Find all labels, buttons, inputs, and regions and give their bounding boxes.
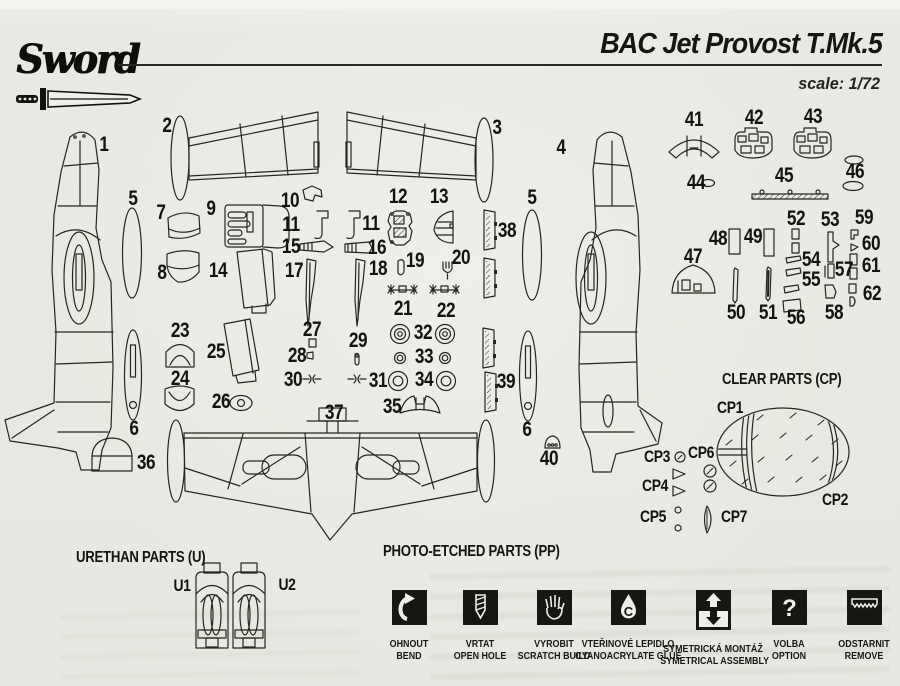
part-11-hook — [315, 211, 328, 238]
remove-saw-icon — [847, 590, 882, 625]
part-7-intake — [168, 213, 200, 238]
part-24-cowl — [165, 386, 194, 411]
part-33-wheels-small — [395, 353, 451, 364]
clear-part-cp1-canopy — [717, 407, 849, 497]
part-20-yoke — [443, 262, 452, 279]
part-36-nose-cap — [92, 438, 132, 471]
part-23-cowl — [166, 345, 194, 368]
part-44-disc — [702, 180, 715, 187]
clear-part-cp6 — [704, 465, 716, 492]
urethan-seat-u2 — [233, 563, 265, 648]
part-4-fuselage-right — [576, 132, 662, 472]
part-31-coupling — [348, 375, 366, 383]
part-42-instrument-tray — [735, 128, 772, 158]
part-19-fitting — [398, 260, 404, 275]
part-5-tailplane-right — [523, 210, 542, 300]
part-17-blade — [306, 259, 316, 326]
part-10-bracket — [303, 186, 322, 201]
part-57-post — [825, 264, 834, 278]
part-60-wedge — [851, 244, 858, 251]
part-30-coupling — [303, 375, 321, 383]
part-1-fuselage-left — [5, 132, 113, 470]
part-39-flaps — [483, 328, 498, 412]
clear-part-cp5 — [675, 507, 681, 531]
glue-drop-icon: C — [611, 590, 646, 625]
part-43-instrument-tray — [794, 128, 831, 158]
clear-part-cp7 — [705, 506, 712, 533]
parts-diagram — [0, 0, 900, 686]
symmetrical-assembly-icon — [696, 590, 731, 630]
part-46-discs — [843, 156, 863, 191]
part-61-blocks — [850, 254, 857, 279]
part-26-grommet — [225, 396, 252, 411]
part-52-blocks — [792, 229, 799, 253]
photo-etched-heading: PHOTO-ETCHED PARTS (PP) — [383, 543, 560, 561]
part-28-block — [307, 352, 313, 359]
part-34-wheels — [389, 372, 456, 391]
part-51-blade — [766, 267, 771, 301]
part-21-axle — [388, 285, 417, 294]
part-14-seat-back — [237, 249, 275, 313]
part-40-dome — [545, 436, 560, 448]
part-18-blade — [355, 259, 365, 326]
svg-text:C: C — [623, 604, 633, 619]
part-11-hook-b — [347, 211, 360, 238]
part-8-intake — [167, 251, 199, 282]
part-15-wedge — [300, 241, 333, 252]
part-13-bulkhead — [434, 211, 453, 243]
part-16-wedge — [345, 242, 372, 253]
part-47-canopy-frame — [672, 265, 715, 293]
clear-part-cp4 — [673, 469, 685, 496]
svg-text:?: ? — [782, 595, 797, 622]
part-27-block — [309, 339, 316, 347]
part-22-axle — [430, 285, 459, 294]
part-49-panel — [764, 229, 774, 256]
part-41-windscreen-frame — [669, 136, 719, 158]
part-25-seat — [224, 319, 259, 383]
part-53-pitot — [828, 232, 839, 262]
part-37-lower-wing — [168, 408, 495, 540]
part-50-blade — [733, 268, 738, 303]
part-59-block — [851, 230, 858, 239]
part-12-ejection-gun — [388, 211, 412, 245]
part-35-fairing — [400, 396, 440, 413]
legend-item-remove: ODSTARNIT REMOVE — [802, 590, 900, 662]
part-2-wing-upper-left — [171, 112, 319, 200]
part-38-flaps — [484, 210, 497, 298]
part-9-cockpit-module — [225, 205, 289, 248]
part-29-peg — [355, 353, 359, 365]
part-5-tailplane-left — [123, 208, 142, 298]
part-45-strip — [752, 190, 828, 199]
part-3-wing-upper-right — [346, 112, 493, 202]
part-56-wedge — [783, 299, 801, 312]
clear-parts-heading: CLEAR PARTS (CP) — [722, 371, 841, 389]
part-62-blocks — [849, 284, 856, 306]
urethan-seat-u1 — [196, 563, 228, 648]
part-48-panel — [729, 229, 740, 254]
clear-part-cp3 — [675, 452, 685, 462]
part-54-wedge — [786, 256, 801, 263]
part-55-wedges — [784, 268, 801, 293]
urethan-parts-heading: URETHAN PARTS (U) — [76, 549, 205, 567]
part-6-fin-left — [125, 330, 142, 420]
part-58-bracket — [825, 285, 836, 298]
part-6-fin-right — [520, 331, 537, 421]
part-32-wheels — [391, 325, 455, 344]
instruction-sheet-page: Sword BAC Jet Provost T.Mk.5 scale: 1/72 — [0, 0, 900, 686]
